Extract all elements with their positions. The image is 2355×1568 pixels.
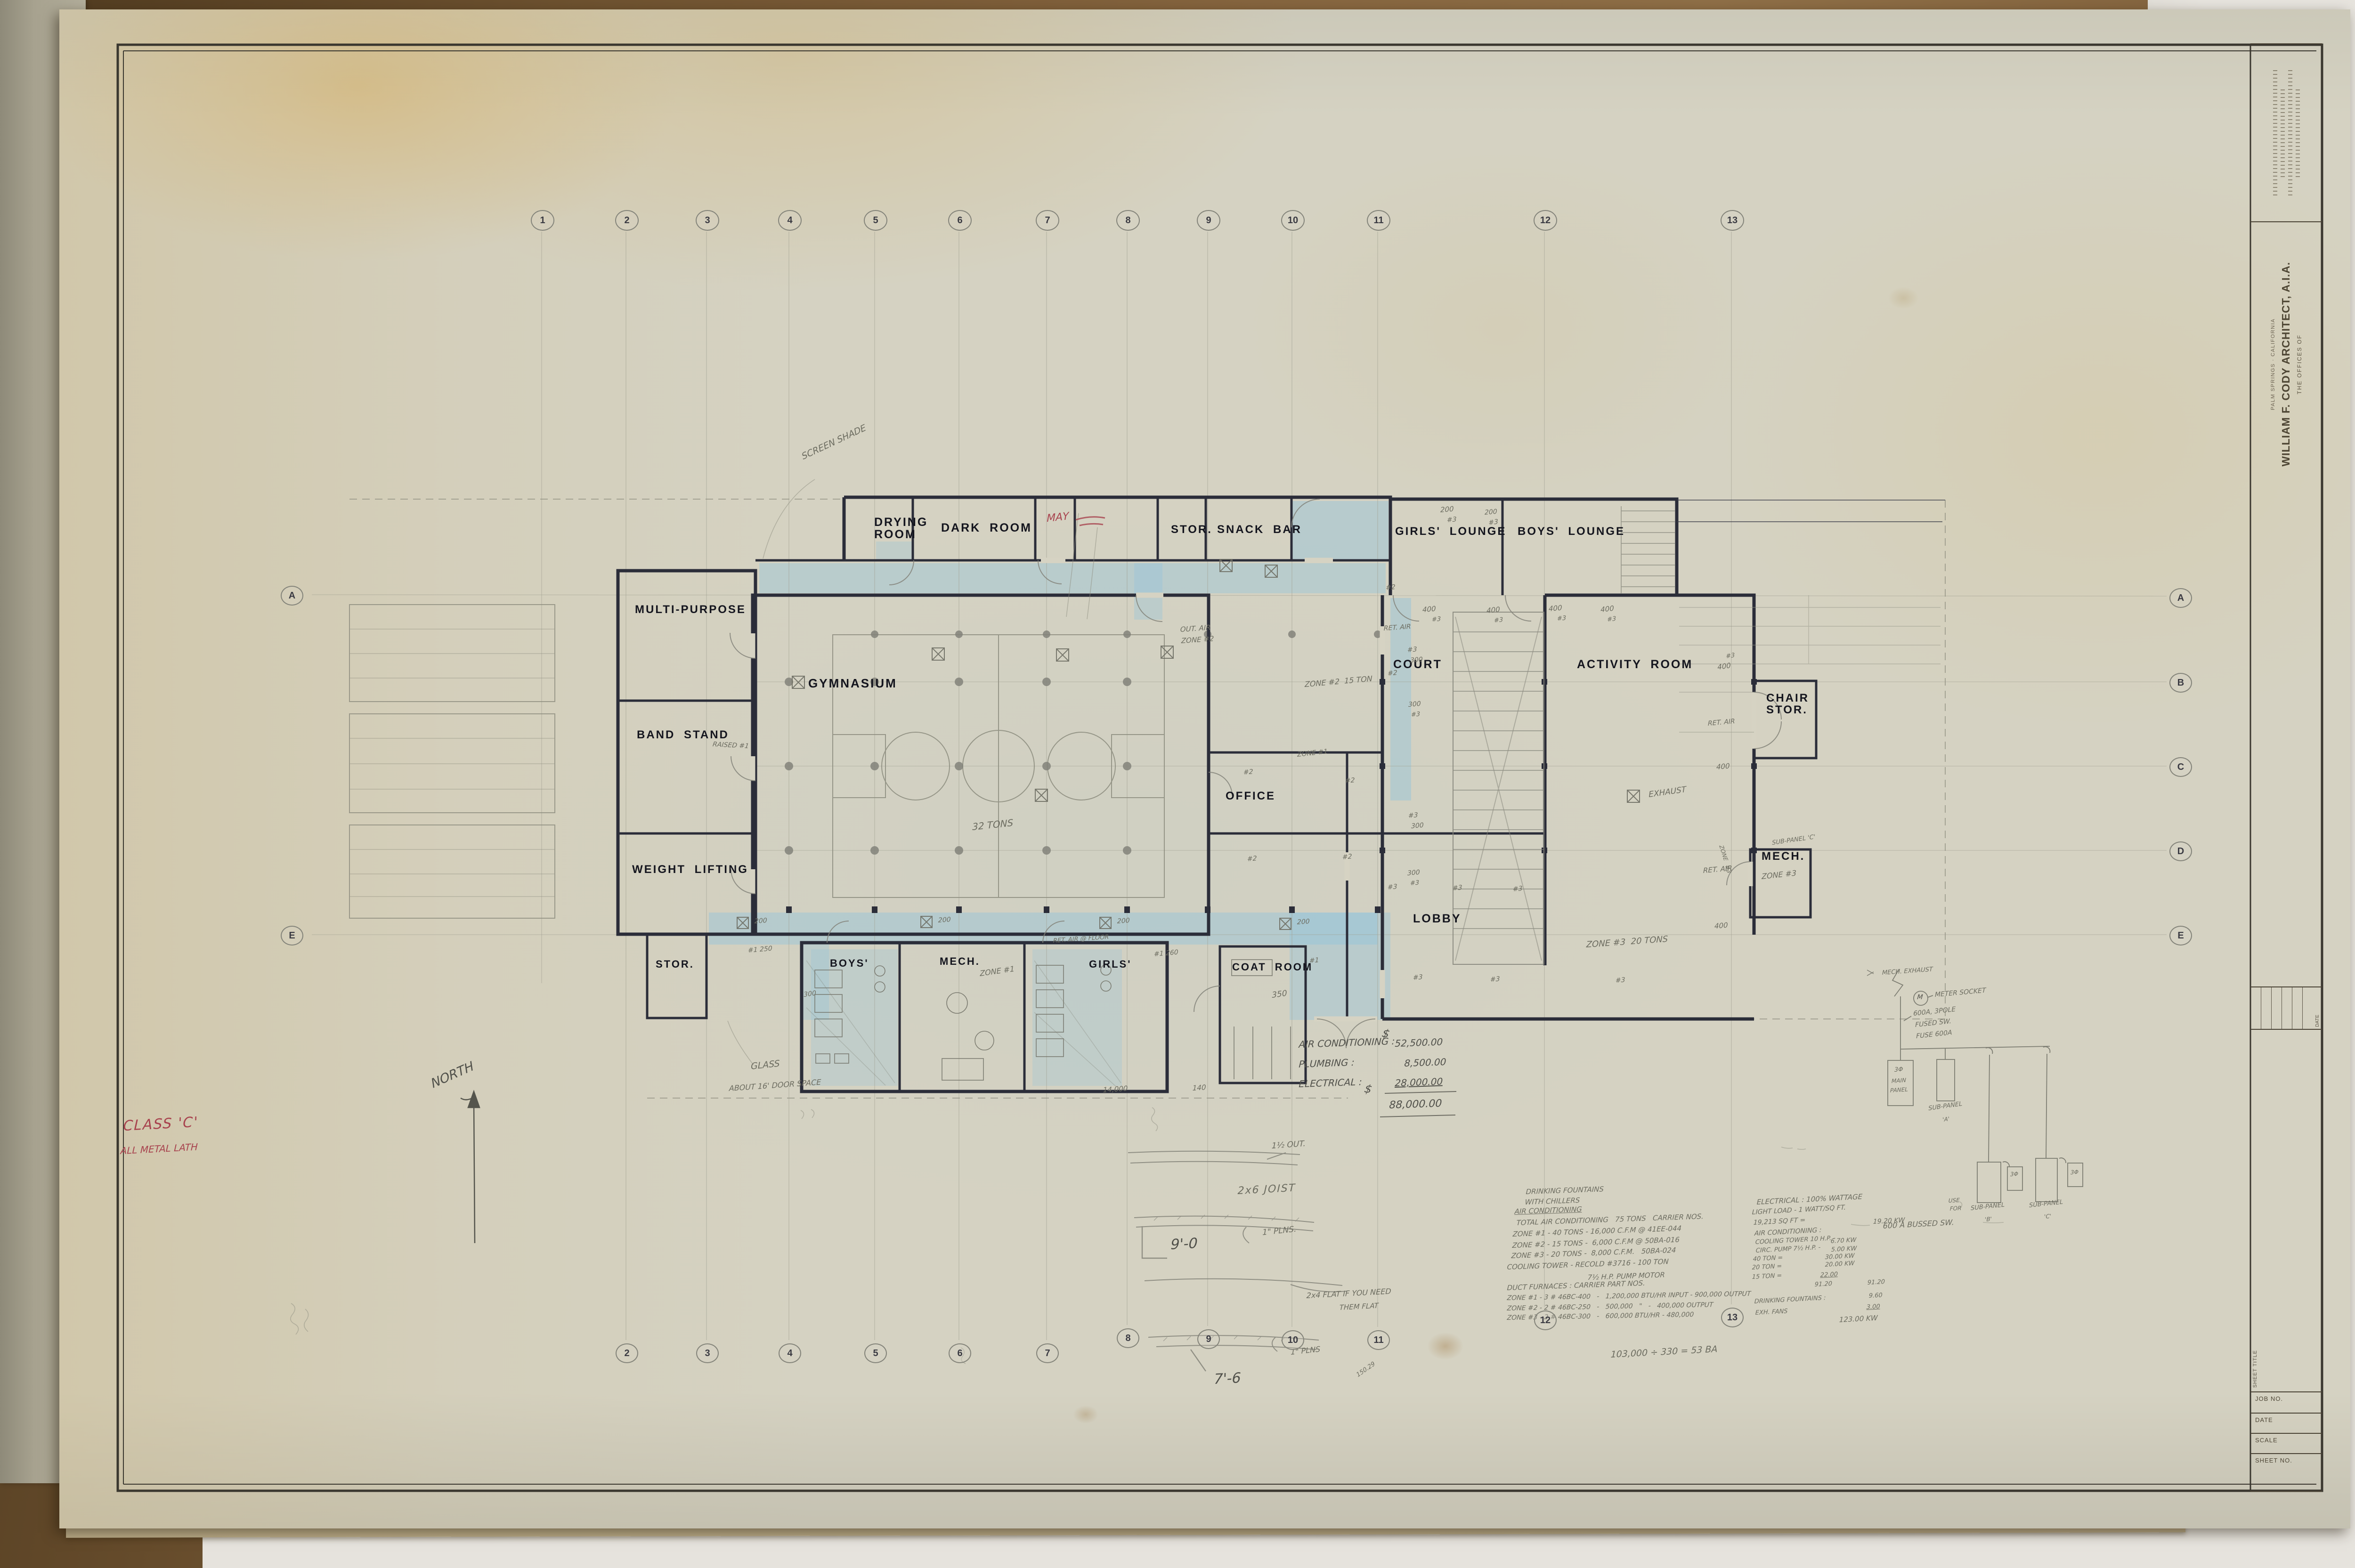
annotation-3: #3 bbox=[1616, 977, 1625, 985]
annotation-3: #3 bbox=[1407, 646, 1417, 654]
room-label-mech: MECH. bbox=[940, 956, 980, 967]
grid-bubble-4: 4 bbox=[778, 210, 802, 231]
annotation-300: 300 bbox=[1408, 701, 1421, 709]
annotation-2: #2 bbox=[1388, 670, 1397, 678]
annotation-may: MAY bbox=[1047, 511, 1069, 524]
architect-name: WILLIAM F. CODY ARCHITECT, A.I.A. bbox=[2280, 262, 2292, 467]
annotation-3: #3 bbox=[1453, 884, 1462, 892]
annotation-3: 3Φ bbox=[2010, 1171, 2018, 1178]
annotation-20-ton: 20 TON = bbox=[1752, 1263, 1782, 1271]
annotation-140: 140 bbox=[1193, 1084, 1206, 1092]
annotation-a: 'A' bbox=[1942, 1116, 1949, 1123]
annotation-2: #2 bbox=[1345, 777, 1355, 785]
grid-bubble-1: 1 bbox=[531, 210, 554, 231]
room-label-band-stand: BAND STAND bbox=[637, 729, 729, 741]
annotation-40-ton: 40 TON = bbox=[1753, 1255, 1783, 1263]
grid-bubble-3: 3 bbox=[696, 1343, 719, 1363]
annotation-3: #3 bbox=[1607, 616, 1616, 623]
grid-bubble-7: 7 bbox=[1036, 210, 1059, 231]
annotation-3: #3 bbox=[1447, 516, 1457, 524]
annotation-3: #3 bbox=[1557, 615, 1566, 622]
annotation-1: #1 bbox=[1309, 957, 1319, 965]
annotation-200: 200 bbox=[938, 916, 951, 924]
sheet-title-label: SHEET TITLE bbox=[2252, 1350, 2258, 1388]
annotation-91-20: 91.20 bbox=[1868, 1279, 1885, 1286]
annotation-200: 200 bbox=[755, 917, 767, 925]
annotation-300: 300 bbox=[1407, 869, 1420, 877]
annotation-400: 400 bbox=[1714, 922, 1728, 930]
room-label-girls-lounge: GIRLS' LOUNGE bbox=[1395, 525, 1506, 537]
job-no-field: JOB NO. bbox=[2250, 1391, 2322, 1413]
room-label-stor: STOR. bbox=[1171, 524, 1212, 535]
annotation-20-00-kw: 20.00 KW bbox=[1825, 1261, 1855, 1269]
grid-bubble-2: 2 bbox=[616, 1343, 638, 1363]
room-label-weight-lifting: WEIGHT LIFTING bbox=[632, 864, 748, 875]
annotation-3: #3 bbox=[1490, 976, 1500, 984]
grid-bubble-13: 13 bbox=[1721, 210, 1744, 231]
annotation-2: #2 bbox=[1386, 584, 1396, 592]
grid-bubble-A: A bbox=[2169, 588, 2192, 608]
floor-plan-linework bbox=[0, 0, 2355, 1568]
annotation-plumbing: PLUMBING : bbox=[1299, 1058, 1355, 1069]
annotation-3: #3 bbox=[1513, 885, 1523, 893]
annotation-3: 3Φ bbox=[2071, 1169, 2079, 1176]
sheet-title-box: SHEET TITLE bbox=[2250, 1029, 2322, 1391]
grid-bubble-8: 8 bbox=[1116, 210, 1140, 231]
annotation-3-00: 3.00 bbox=[1867, 1303, 1880, 1310]
grid-bubble-12: 12 bbox=[1534, 210, 1557, 231]
annotation-300: 300 bbox=[1411, 822, 1424, 830]
annotation-use: USE bbox=[1949, 1197, 1960, 1204]
annotation-400: 400 bbox=[1422, 606, 1436, 614]
grid-bubble-6: 6 bbox=[949, 1343, 971, 1363]
date-field: DATE bbox=[2250, 1413, 2322, 1433]
annotation-8-500-00: 8,500.00 bbox=[1404, 1057, 1446, 1068]
annotation-400: 400 bbox=[1716, 763, 1730, 771]
annotation-3: #3 bbox=[1726, 652, 1735, 660]
grid-bubble-A: A bbox=[281, 586, 303, 606]
annotation-3: 3Φ bbox=[1894, 1067, 1903, 1074]
grid-bubble-11: 11 bbox=[1367, 210, 1390, 231]
annotation-91-20: 91.20 bbox=[1815, 1281, 1833, 1288]
annotation-14-000: 14,000 bbox=[1103, 1085, 1128, 1094]
annotation-400: 400 bbox=[1549, 605, 1562, 613]
annotation-7-6: 7'-6 bbox=[1214, 1371, 1241, 1387]
grid-bubble-10: 10 bbox=[1281, 210, 1305, 231]
annotation-electrical: ELECTRICAL : bbox=[1299, 1077, 1362, 1089]
room-label-boys: BOYS' bbox=[830, 958, 869, 969]
grid-bubble-3: 3 bbox=[696, 210, 719, 231]
room-label-coat-room: COAT ROOM bbox=[1232, 962, 1313, 972]
grid-bubble-2: 2 bbox=[615, 210, 639, 231]
annotation-22-00: 22.00 bbox=[1820, 1271, 1838, 1279]
scale-field: SCALE bbox=[2250, 1433, 2322, 1453]
annotation-200: 200 bbox=[1440, 506, 1454, 514]
annotation-3: #3 bbox=[1432, 616, 1441, 623]
grid-bubble-D: D bbox=[2169, 841, 2192, 861]
room-label-office: OFFICE bbox=[1226, 790, 1275, 802]
grid-bubble-6: 6 bbox=[948, 210, 972, 231]
scanned-blueprint-photo: PALM SPRINGS · CALIFORNIA WILLIAM F. COD… bbox=[0, 0, 2355, 1568]
annotation-400: 400 bbox=[1600, 605, 1614, 614]
annotation-2: #2 bbox=[1342, 853, 1352, 861]
grid-bubble-5: 5 bbox=[864, 210, 887, 231]
room-label-activity-room: ACTIVITY ROOM bbox=[1577, 658, 1693, 671]
annotation-2: #2 bbox=[1247, 855, 1257, 863]
grid-bubble-C: C bbox=[2169, 757, 2192, 777]
grid-bubble-12: 12 bbox=[1534, 1310, 1557, 1330]
annotation-c: 'C' bbox=[2044, 1213, 2051, 1220]
annotation-class-c: CLASS 'C' bbox=[123, 1115, 199, 1134]
annotation-400: 400 bbox=[1486, 606, 1500, 615]
annotation-300: 300 bbox=[1410, 656, 1423, 664]
consultant-stamp bbox=[2250, 43, 2322, 221]
grid-bubble-B: B bbox=[2169, 673, 2192, 693]
annotation-9-60: 9.60 bbox=[1869, 1292, 1883, 1299]
architect-address: PALM SPRINGS · CALIFORNIA bbox=[2270, 318, 2276, 410]
annotation-52-500-00: 52,500.00 bbox=[1395, 1037, 1443, 1049]
grid-bubble-5: 5 bbox=[864, 1343, 887, 1363]
room-label-gymnasium: GYMNASIUM bbox=[808, 677, 897, 690]
title-block: PALM SPRINGS · CALIFORNIA WILLIAM F. COD… bbox=[2250, 43, 2322, 1492]
annotation-200: 200 bbox=[1485, 509, 1497, 517]
grid-bubble-11: 11 bbox=[1367, 1330, 1390, 1350]
annotation-3: #3 bbox=[1408, 812, 1418, 820]
annotation-main: MAIN bbox=[1892, 1077, 1906, 1084]
annotation-panel: PANEL bbox=[1890, 1086, 1908, 1093]
grid-bubble-9: 9 bbox=[1197, 210, 1220, 231]
annotation-9-0: 9'-0 bbox=[1170, 1236, 1198, 1253]
annotation-2: #2 bbox=[1243, 768, 1253, 776]
grid-bubble-13: 13 bbox=[1721, 1308, 1744, 1327]
room-label-mech: MECH. bbox=[1762, 850, 1805, 862]
annotation-6-70-kw: 6.70 KW bbox=[1831, 1237, 1857, 1245]
revisions-box: DATE bbox=[2250, 986, 2322, 1029]
grid-bubble-E: E bbox=[2169, 926, 2192, 946]
room-label-dark-room: DARK ROOM bbox=[941, 522, 1032, 534]
room-label-stor: STOR. bbox=[656, 959, 694, 970]
annotation-for: FOR bbox=[1950, 1205, 1962, 1212]
grid-bubble-9: 9 bbox=[1197, 1329, 1220, 1349]
annotation-88-000-00: 88,000.00 bbox=[1389, 1098, 1442, 1111]
revisions-date-label: DATE bbox=[2315, 1015, 2320, 1027]
annotation-28-000-00: 28,000.00 bbox=[1395, 1076, 1443, 1088]
annotation-b: 'B' bbox=[1985, 1216, 1992, 1222]
architect-name-block: PALM SPRINGS · CALIFORNIA WILLIAM F. COD… bbox=[2250, 221, 2322, 506]
room-label-boys-lounge: BOYS' LOUNGE bbox=[1518, 525, 1625, 537]
annotation-3: #3 bbox=[1488, 518, 1498, 527]
grid-bubble-10: 10 bbox=[1282, 1330, 1304, 1350]
room-label-snack-bar: SNACK BAR bbox=[1217, 524, 1302, 535]
annotation-3: #3 bbox=[1413, 974, 1423, 982]
room-label-lobby: LOBBY bbox=[1413, 913, 1462, 925]
annotation-3: #3 bbox=[1410, 880, 1419, 887]
room-label-drying-room: DRYING ROOM bbox=[874, 516, 928, 541]
annotation-3: #3 bbox=[1388, 883, 1397, 891]
room-label-multi-purpose: MULTI-PURPOSE bbox=[635, 604, 746, 615]
annotation-m: M bbox=[1917, 994, 1923, 1001]
annotation-3: #3 bbox=[1411, 711, 1420, 718]
room-label-girls: GIRLS' bbox=[1089, 959, 1131, 970]
annotation-200: 200 bbox=[1297, 918, 1310, 926]
grid-bubble-4: 4 bbox=[779, 1343, 801, 1363]
grid-bubble-E: E bbox=[281, 926, 303, 946]
annotation-30-00-kw: 30.00 KW bbox=[1825, 1253, 1855, 1261]
room-label-chair-stor: CHAIR STOR. bbox=[1766, 692, 1809, 716]
annotation-15-ton: 15 TON = bbox=[1752, 1273, 1782, 1281]
grid-bubble-8: 8 bbox=[1117, 1328, 1139, 1348]
sheet-no-field: SHEET NO. bbox=[2250, 1453, 2322, 1492]
annotation-200: 200 bbox=[1117, 917, 1130, 925]
annotation-3: #3 bbox=[1494, 617, 1503, 624]
architect-office-prefix: THE OFFICES OF bbox=[2296, 334, 2303, 394]
grid-bubble-7: 7 bbox=[1036, 1343, 1059, 1363]
